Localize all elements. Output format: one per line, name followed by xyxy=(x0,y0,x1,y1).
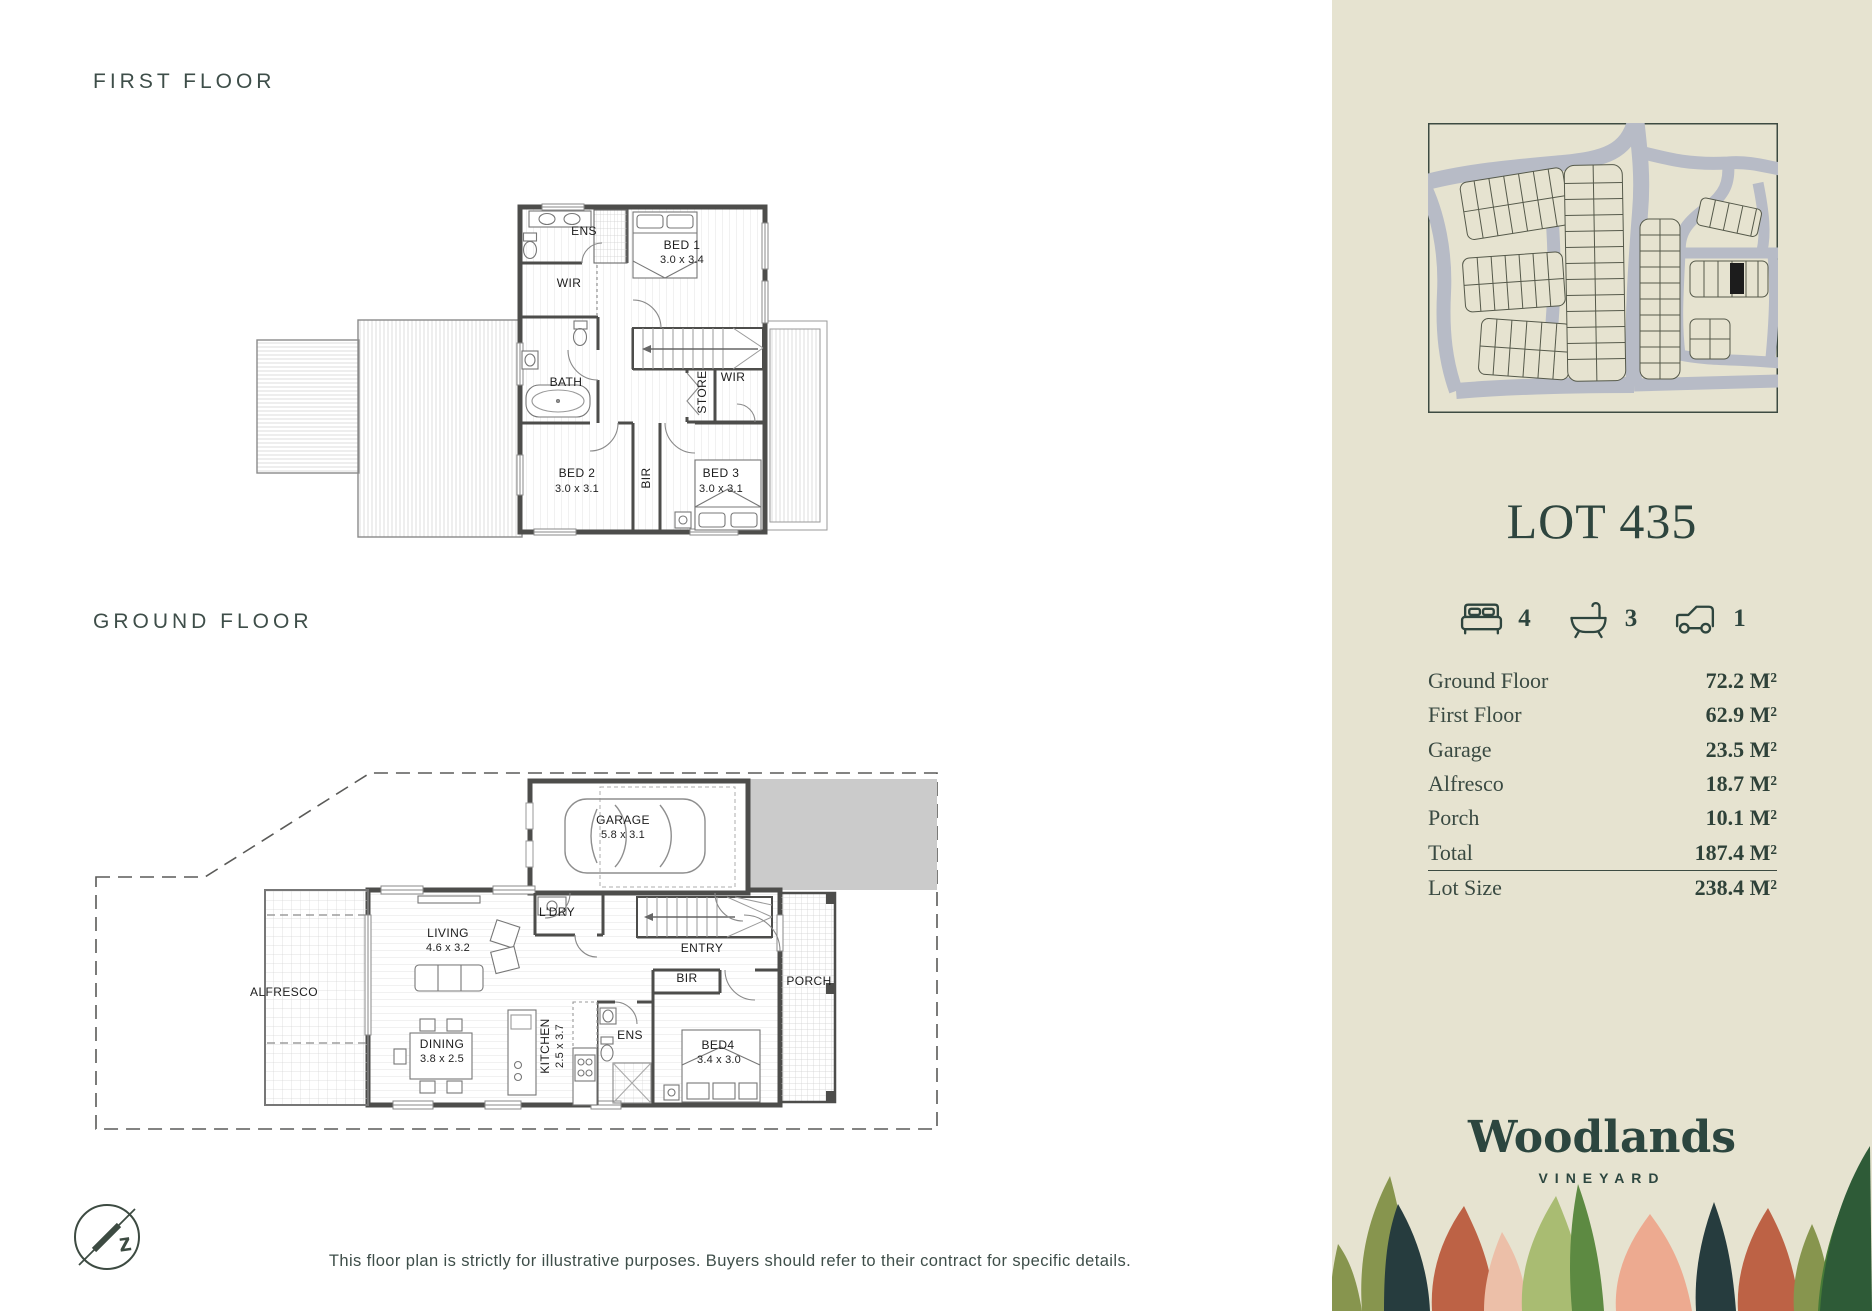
bed-icon xyxy=(1458,599,1505,639)
room-label-wir-right: WIR xyxy=(721,370,746,384)
room-label-laundry: L'DRY xyxy=(539,905,575,919)
table-row: Garage 23.5 M² xyxy=(1428,733,1777,767)
floorplan-brochure-page: FIRST FLOOR xyxy=(0,0,1872,1311)
area-table: Ground Floor 72.2 M² First Floor 62.9 M²… xyxy=(1428,664,1777,905)
car-count: 1 xyxy=(1733,605,1746,633)
roof-outline-left xyxy=(358,320,522,537)
room-label-bed3: BED 3 xyxy=(703,466,740,480)
room-size-kitchen: 2.5 x 3.7 xyxy=(554,1024,566,1068)
table-row: Porch 10.1 M² xyxy=(1428,801,1777,835)
highlighted-lot xyxy=(1730,263,1744,294)
bedroom-count: 4 xyxy=(1518,605,1531,633)
stat-cars: 1 xyxy=(1671,600,1746,638)
table-row: First Floor 62.9 M² xyxy=(1428,698,1777,732)
room-label-living: LIVING xyxy=(427,926,469,940)
room-label-bed2: BED 2 xyxy=(559,466,596,480)
table-row: Alfresco 18.7 M² xyxy=(1428,767,1777,801)
room-label-garage: GARAGE xyxy=(596,813,650,827)
neighbour-shaded-area xyxy=(748,779,937,890)
first-floor-heading: FIRST FLOOR xyxy=(93,70,275,94)
first-floor-plan xyxy=(250,165,840,545)
estate-map xyxy=(1428,123,1778,413)
north-compass-icon: z xyxy=(67,1197,153,1283)
table-row-total: Total 187.4 M² xyxy=(1428,835,1777,869)
info-sidebar: LOT 435 4 xyxy=(1332,0,1872,1311)
car-icon xyxy=(1671,600,1720,638)
room-label-entry: ENTRY xyxy=(681,941,723,955)
room-label-bir-first: BIR xyxy=(639,467,653,488)
room-size-bed3: 3.0 x 3.1 xyxy=(699,483,743,495)
room-label-wir-left: WIR xyxy=(557,276,582,290)
room-size-bed1: 3.0 x 3.4 xyxy=(660,254,704,266)
room-label-ens-ground: ENS xyxy=(617,1028,643,1042)
bath-icon xyxy=(1565,598,1612,640)
compass-letter: z xyxy=(117,1228,133,1257)
room-size-living: 4.6 x 3.2 xyxy=(426,942,470,954)
room-label-store: STORE xyxy=(695,370,709,413)
disclaimer-text: This floor plan is strictly for illustra… xyxy=(285,1252,1175,1271)
room-size-bed2: 3.0 x 3.1 xyxy=(555,483,599,495)
lot-title: LOT 435 xyxy=(1332,492,1872,550)
porch-area xyxy=(780,893,836,1102)
ground-floor-plan xyxy=(75,765,955,1145)
decorative-leaves xyxy=(1332,1140,1872,1311)
room-label-bed4: BED4 xyxy=(702,1038,735,1052)
room-size-dining: 3.8 x 2.5 xyxy=(420,1053,464,1065)
roof-outline-left-small xyxy=(257,340,359,473)
room-size-bed4: 3.4 x 3.0 xyxy=(697,1054,741,1066)
room-label-alfresco: ALFRESCO xyxy=(250,985,318,999)
room-label-porch: PORCH xyxy=(786,974,831,988)
stats-row: 4 3 xyxy=(1332,598,1872,640)
stairs xyxy=(633,328,763,369)
room-size-garage: 5.8 x 3.1 xyxy=(601,829,645,841)
room-label-ens: ENS xyxy=(571,224,597,238)
ground-floor-heading: GROUND FLOOR xyxy=(93,610,313,634)
room-label-bed1: BED 1 xyxy=(664,238,701,252)
stat-bedrooms: 4 xyxy=(1458,599,1531,639)
table-row-lot-size: Lot Size 238.4 M² xyxy=(1428,871,1777,905)
room-label-bir-ground: BIR xyxy=(676,971,697,985)
table-row: Ground Floor 72.2 M² xyxy=(1428,664,1777,698)
room-label-dining: DINING xyxy=(420,1037,464,1051)
bathroom-count: 3 xyxy=(1625,605,1638,633)
room-label-kitchen: KITCHEN xyxy=(538,1018,552,1073)
stat-bathrooms: 3 xyxy=(1565,598,1638,640)
entry-stairs xyxy=(637,897,772,937)
room-label-bath: BATH xyxy=(550,375,583,389)
